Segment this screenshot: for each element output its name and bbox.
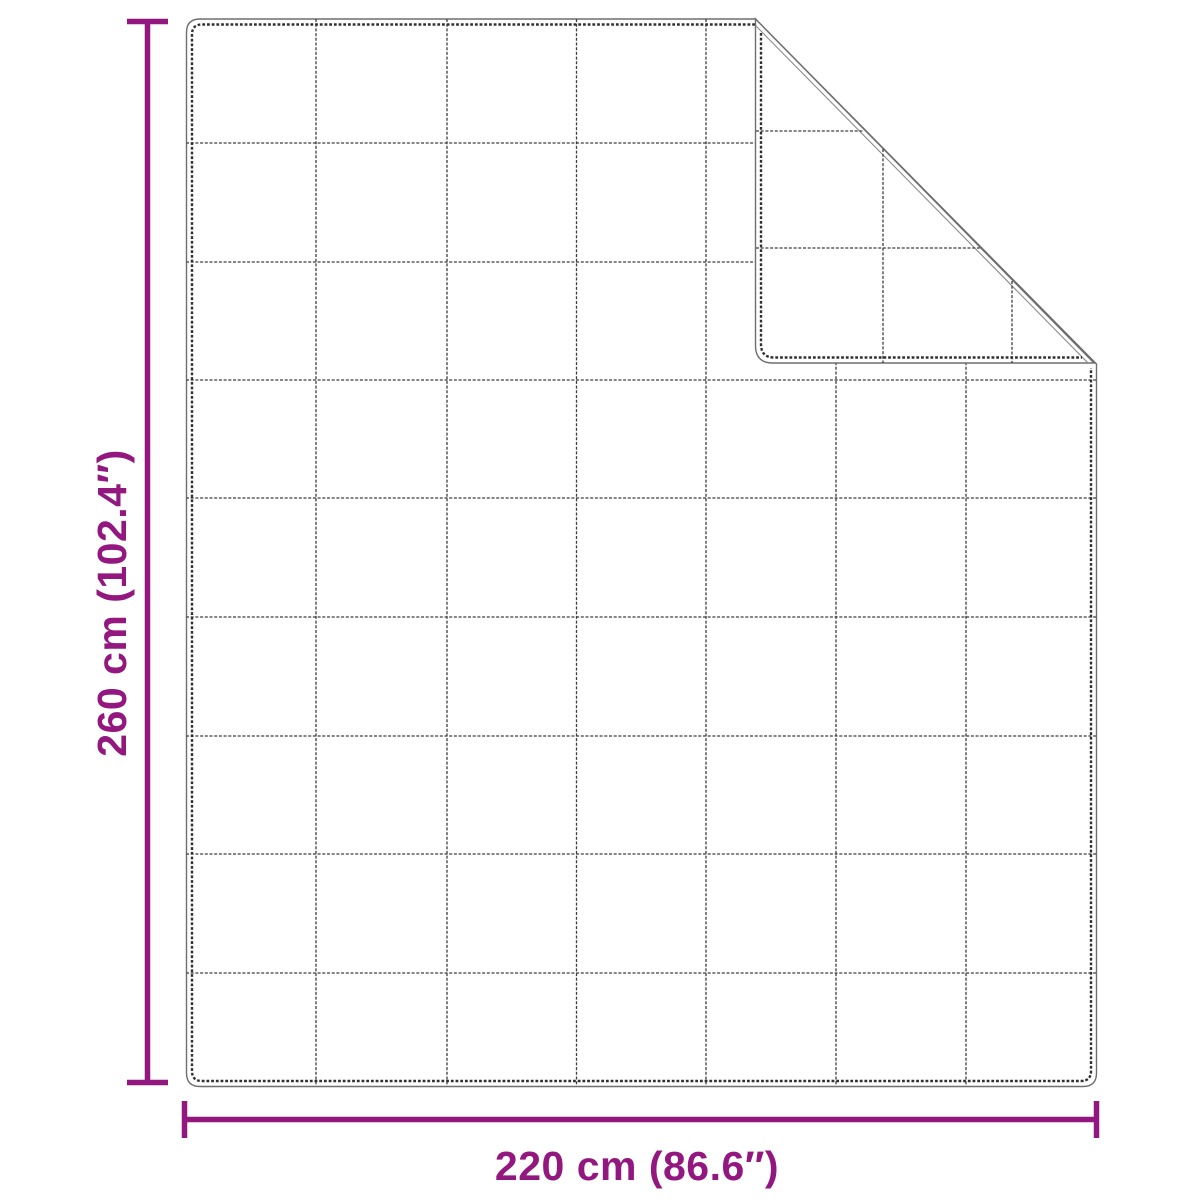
folded-corner-flap	[754, 19, 1094, 365]
height-label: 260 cm (102.4″)	[89, 449, 135, 757]
blanket-body	[186, 19, 1097, 1087]
product-dimension-image: 260 cm (102.4″) 220 cm (86.6″)	[0, 0, 1200, 1200]
blanket-outline	[187, 19, 1097, 1087]
width-dimension-line	[185, 1101, 1097, 1138]
flap-outline	[756, 19, 1095, 363]
width-label: 220 cm (86.6″)	[495, 1143, 779, 1189]
dimension-diagram-svg: 260 cm (102.4″) 220 cm (86.6″)	[0, 0, 1200, 1200]
